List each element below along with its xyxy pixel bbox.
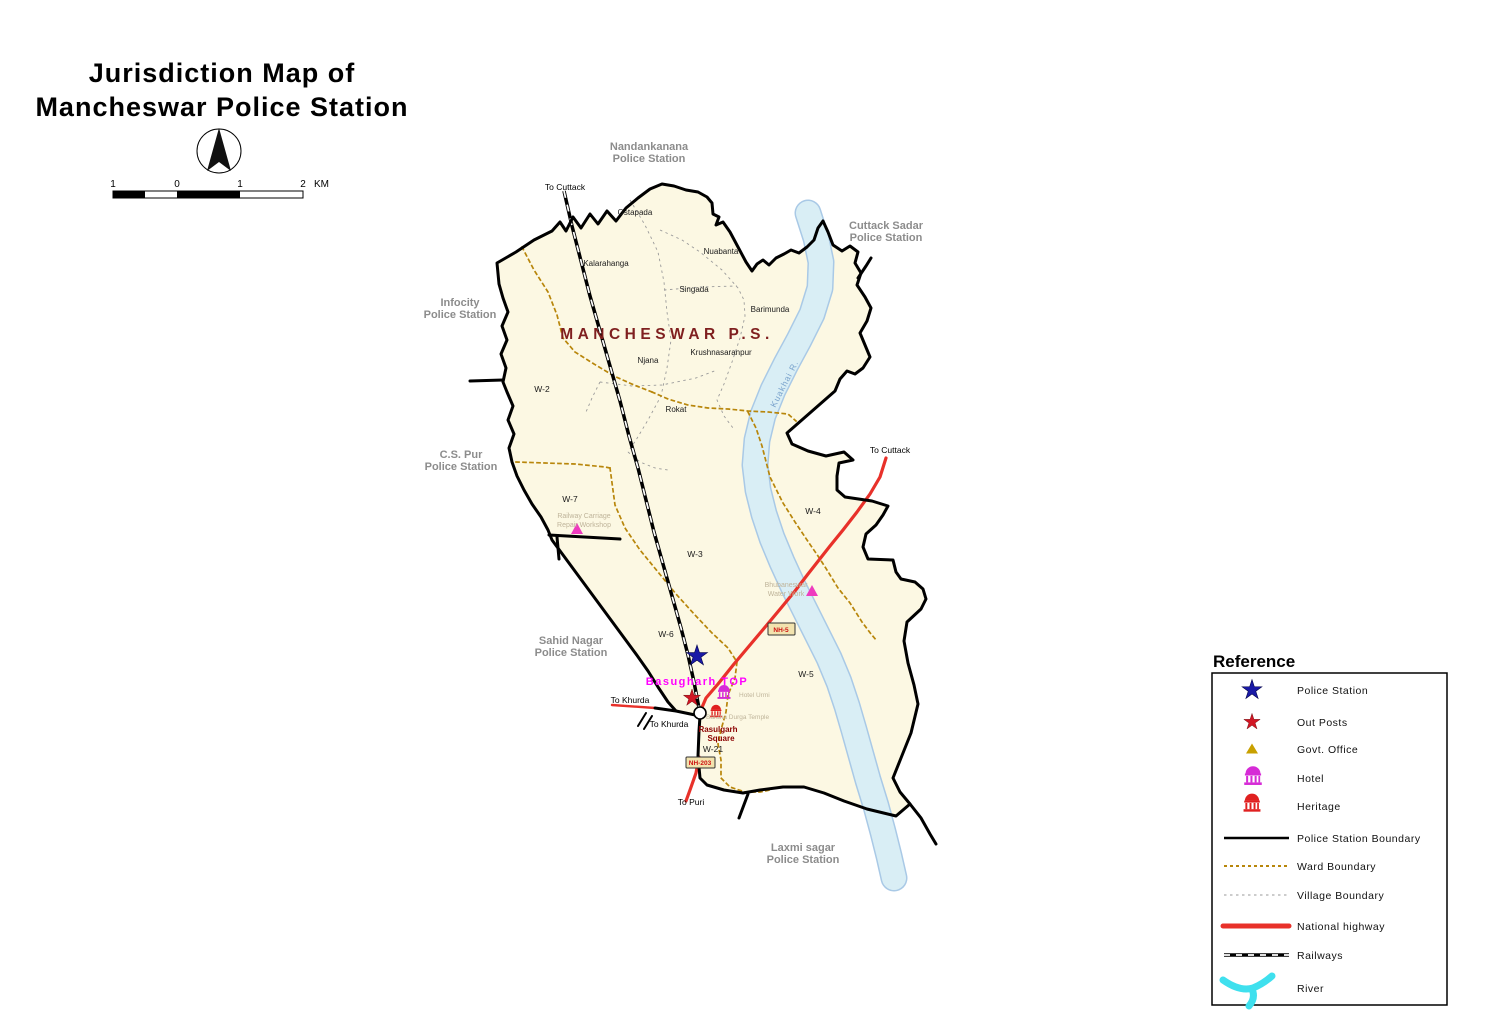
legend-item-label: Village Boundary bbox=[1297, 890, 1384, 902]
label-cs-pur-ps: Police Station bbox=[425, 461, 498, 473]
legend-item-label: Police Station bbox=[1297, 685, 1368, 697]
page-title-line2: Mancheswar Police Station bbox=[35, 92, 408, 122]
nh5-badge: NH-5 bbox=[773, 627, 789, 634]
nh203-badge: NH-203 bbox=[689, 760, 712, 767]
scale-bar: 1 0 1 2 KM bbox=[110, 179, 329, 198]
village-label: Nuabanta bbox=[704, 247, 739, 256]
title-block: Jurisdiction Map of Mancheswar Police St… bbox=[35, 58, 408, 122]
road-label-to-cuttack-nw: To Cuttack bbox=[545, 182, 586, 192]
basugharh-top-label: Basugharh TOP bbox=[646, 676, 748, 688]
scale-tick: 2 bbox=[300, 179, 306, 190]
scale-unit: KM bbox=[314, 179, 329, 190]
legend-title: Reference bbox=[1213, 652, 1295, 671]
jurisdiction-map: NH-5 NH-203 Nandankanana Police Station … bbox=[424, 141, 936, 878]
north-arrow-icon bbox=[197, 128, 241, 173]
road-label-to-cuttack-e: To Cuttack bbox=[870, 445, 911, 455]
mancheswar-ps-label: MANCHESWAR P.S. bbox=[560, 326, 774, 343]
rasulgarh-square-label: Rasulgarh bbox=[698, 725, 737, 734]
village-label: Ostapada bbox=[618, 208, 653, 217]
ward-label: W-2 bbox=[534, 384, 550, 394]
label-laxmi-sagar-ps: Laxmi sagar bbox=[771, 842, 836, 854]
road-label-to-khurda-2: To Khurda bbox=[650, 719, 689, 729]
workshop-label: Railway Carriage bbox=[557, 513, 610, 520]
legend-item-label: Govt. Office bbox=[1297, 744, 1358, 756]
village-label: Njana bbox=[638, 356, 659, 365]
village-label: Barimunda bbox=[751, 305, 790, 314]
page-title-line1: Jurisdiction Map of bbox=[89, 58, 356, 88]
rasulgarh-square-label: Square bbox=[707, 734, 735, 743]
scale-tick: 0 bbox=[174, 179, 180, 190]
legend: Reference Police Station Out Posts Govt.… bbox=[1212, 652, 1447, 1006]
legend-item-label: Out Posts bbox=[1297, 717, 1348, 729]
ward-label: W-6 bbox=[658, 629, 674, 639]
village-label: Kalarahanga bbox=[583, 259, 629, 268]
label-nandankanana-ps: Police Station bbox=[613, 153, 686, 165]
scale-tick: 1 bbox=[110, 179, 116, 190]
village-label: Rokat bbox=[666, 405, 688, 414]
workshop-label: Repair Workshop bbox=[557, 522, 611, 529]
label-cs-pur-ps: C.S. Pur bbox=[440, 449, 484, 461]
label-infocity-ps: Police Station bbox=[424, 309, 497, 321]
scale-tick: 1 bbox=[237, 179, 243, 190]
label-cuttack-sadar-ps: Cuttack Sadar bbox=[849, 220, 924, 232]
label-laxmi-sagar-ps: Police Station bbox=[767, 854, 840, 866]
legend-item-label: River bbox=[1297, 983, 1324, 995]
legend-item-label: Police Station Boundary bbox=[1297, 833, 1421, 845]
temple-label: Baraha Durga Temple bbox=[706, 714, 769, 721]
ward-label: W-5 bbox=[798, 669, 814, 679]
label-cuttack-sadar-ps: Police Station bbox=[850, 232, 923, 244]
label-infocity-ps: Infocity bbox=[440, 297, 480, 309]
waterwork-label: Bhubaneswar bbox=[765, 582, 808, 589]
village-label: Singada bbox=[679, 285, 709, 294]
legend-item-label: Heritage bbox=[1297, 801, 1341, 813]
road-label-to-puri: To Puri bbox=[678, 797, 705, 807]
legend-item-label: Hotel bbox=[1297, 773, 1324, 785]
ward-label: W-21 bbox=[703, 744, 723, 754]
rasulgarh-junction-circle bbox=[694, 707, 706, 719]
legend-item-label: Railways bbox=[1297, 950, 1343, 962]
map-canvas: Jurisdiction Map of Mancheswar Police St… bbox=[0, 0, 1491, 1026]
legend-item-label: National highway bbox=[1297, 921, 1385, 933]
label-sahid-nagar-ps: Sahid Nagar bbox=[539, 635, 604, 647]
label-nandankanana-ps: Nandankanana bbox=[610, 141, 689, 153]
ward-label: W-4 bbox=[805, 506, 821, 516]
jurisdiction-map-page: Jurisdiction Map of Mancheswar Police St… bbox=[0, 0, 1491, 1026]
legend-item-label: Ward Boundary bbox=[1297, 861, 1376, 873]
road-label-to-khurda-1: To Khurda bbox=[611, 695, 650, 705]
hotel-label: Hotel Urmi bbox=[739, 692, 770, 699]
waterwork-label: Water Work bbox=[768, 591, 805, 598]
label-sahid-nagar-ps: Police Station bbox=[535, 647, 608, 659]
ward-label: W-3 bbox=[687, 549, 703, 559]
village-label: Krushnasaranpur bbox=[690, 348, 752, 357]
ward-label: W-7 bbox=[562, 494, 578, 504]
